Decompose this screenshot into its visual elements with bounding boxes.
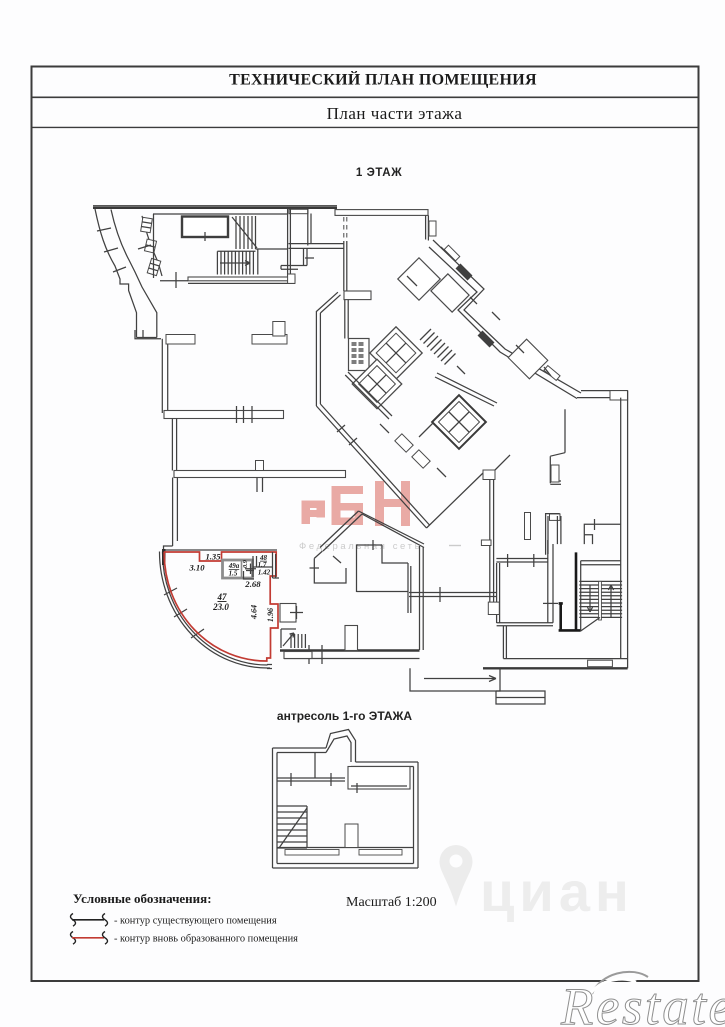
svg-text:План части этажа: План части этажа xyxy=(327,104,463,123)
svg-text:Условные обозначения:: Условные обозначения: xyxy=(73,891,212,906)
svg-text:антресоль 1-го ЭТАЖА: антресоль 1-го ЭТАЖА xyxy=(277,709,412,723)
svg-text:- контур существующего помещен: - контур существующего помещения xyxy=(114,916,277,927)
svg-text:Restate: Restate xyxy=(560,978,725,1027)
svg-text:47: 47 xyxy=(217,592,228,602)
svg-text:Масштаб 1:200: Масштаб 1:200 xyxy=(346,895,437,910)
svg-text:2.68: 2.68 xyxy=(244,579,261,589)
svg-text:0.9: 0.9 xyxy=(242,559,249,568)
svg-text:циан: циан xyxy=(480,860,634,923)
svg-text:4.64: 4.64 xyxy=(250,605,259,620)
svg-text:23.0: 23.0 xyxy=(212,602,229,612)
svg-text:ТЕХНИЧЕСКИЙ ПЛАН ПОМЕЩЕНИЯ: ТЕХНИЧЕСКИЙ ПЛАН ПОМЕЩЕНИЯ xyxy=(229,70,537,89)
svg-text:3.10: 3.10 xyxy=(188,563,205,573)
svg-text:1.96: 1.96 xyxy=(266,607,275,622)
svg-text:1 ЭТАЖ: 1 ЭТАЖ xyxy=(356,167,402,179)
svg-text:1.5: 1.5 xyxy=(229,570,238,578)
svg-text:1.35: 1.35 xyxy=(205,552,221,562)
svg-text:1.42: 1.42 xyxy=(258,568,271,576)
svg-text:- контур вновь образованного п: - контур вновь образованного помещения xyxy=(114,934,298,945)
svg-text:Федеральная сеть: Федеральная сеть xyxy=(299,541,422,552)
